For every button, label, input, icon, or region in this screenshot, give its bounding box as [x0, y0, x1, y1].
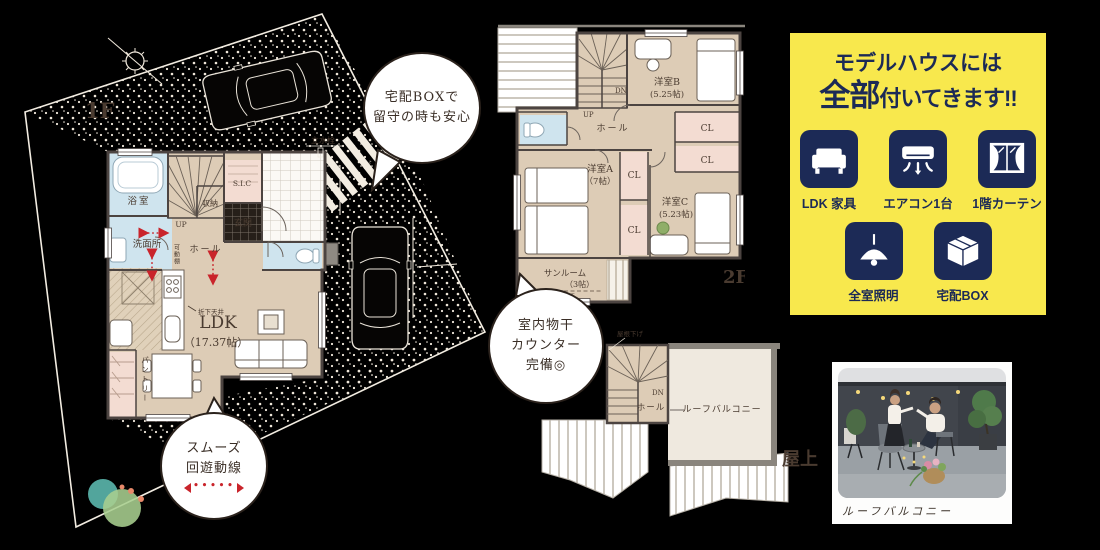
label-cl: CL [701, 124, 714, 134]
bubble-line: 完備◎ [526, 356, 566, 376]
label-sunroom: サンルーム [544, 269, 586, 279]
sunroom-louver [607, 260, 628, 300]
label-roof-balcony: ルーフバルコニー [682, 404, 761, 415]
aircon-icon [899, 140, 937, 178]
promo-item-curtain: 1階カーテン [971, 130, 1043, 212]
plant-icon [657, 222, 669, 234]
label-dn-roof: DN [652, 389, 664, 397]
label-entrance: 玄関 [234, 217, 252, 229]
photo-caption: ルーフバルコニー [842, 503, 953, 519]
label-cl: CL [628, 226, 641, 236]
curtain-icon [988, 140, 1026, 178]
label-ldk-size: （17.37帖） [184, 336, 249, 349]
bubble-line: 留守の時も安心 [373, 108, 471, 128]
floor-plan-2f: 洋室B (5.25帖) DN UP ホール CL CL CL CL 洋室A （7… [495, 15, 745, 310]
label-sic: S.I.C [233, 179, 252, 188]
label-cl: CL [701, 156, 714, 166]
roof-balcony-photo: ルーフバルコニー [832, 362, 1012, 524]
toilet [296, 249, 319, 263]
stove [164, 276, 181, 298]
floor1-label: 1F [85, 98, 115, 123]
label-bedroom-c-size: (5.23帖) [659, 209, 693, 220]
label-washroom: 洗面所 [133, 238, 162, 250]
label-bedroom-a: 洋室A [587, 163, 613, 175]
tree-icon [88, 479, 144, 527]
label-bath: 浴室 [127, 195, 150, 207]
promo-title: モデルハウスには 全部付いてきます!! [790, 51, 1046, 116]
bubble-line: 回遊動線 [186, 459, 242, 479]
bed-bedroom-b [697, 39, 735, 101]
svg-text:立水栓: 立水栓 [311, 135, 335, 145]
roof-surface-left [542, 420, 648, 498]
stairs-2f [577, 33, 627, 108]
label-pantry: パントリー [140, 356, 149, 404]
desk-bedroom-c [650, 235, 688, 255]
car-icon [349, 227, 411, 349]
roof-label: 屋上 [782, 449, 818, 470]
promo-title-line2: 付いてきます!! [879, 86, 1016, 111]
floor2-label: 2F [723, 267, 745, 288]
label-up-1f: UP [175, 220, 186, 229]
label-ldk: LDK [199, 313, 237, 333]
label-hall-roof: ホール [637, 403, 666, 413]
label-hall-1f: ホール [189, 244, 222, 255]
label-storage: 収納 [202, 198, 218, 208]
promo-title-line1: モデルハウスには [790, 51, 1046, 77]
label-bedroom-a-size: （7帖） [585, 176, 616, 187]
label-bedroom-b: 洋室B [654, 76, 680, 88]
label-movable-shelf: 可動棚 [173, 244, 180, 265]
bubble-line: スムーズ [186, 439, 241, 459]
promo-item-delivery-box: 宅配BOX [927, 222, 999, 304]
kitchen-sink [165, 316, 180, 342]
label-cl: CL [628, 171, 641, 181]
sofa-icon [810, 140, 848, 178]
photo-scene [838, 368, 1006, 498]
promo-panel: モデルハウスには 全部付いてきます!! LDK 家具 [790, 33, 1046, 315]
flyer-canvas: 1F [0, 0, 1100, 550]
promo-item-lighting: 全室照明 [838, 222, 910, 304]
label-dn-2f: DN [615, 87, 627, 95]
washbasin [110, 238, 126, 262]
bubble-indoor-drying: 室内物干 カウンター 完備◎ [488, 288, 604, 404]
lower-roof-stripes [498, 28, 577, 112]
bubble-smooth-flow: スムーズ 回遊動線 ••••• [160, 412, 268, 520]
label-bedroom-b-size: (5.25帖) [650, 89, 684, 100]
cupboard [110, 320, 132, 346]
dining-table [143, 354, 201, 398]
beds-bedroom-a [525, 168, 588, 254]
promo-title-emphasis: 全部 [819, 78, 879, 113]
toilet [524, 123, 544, 137]
ceiling-light-icon [855, 232, 893, 270]
bubble-line: 宅配BOXで [385, 88, 459, 108]
room-porch [263, 152, 325, 242]
label-hall-2f: ホール [596, 123, 629, 134]
tv-board [258, 310, 284, 334]
delivery-box-icon [944, 232, 982, 270]
bed-bedroom-c [695, 193, 730, 254]
stairs-1f [168, 156, 224, 218]
red-dotted-arrow-icon: ••••• [184, 482, 244, 493]
svg-text:折下天井: 折下天井 [198, 307, 225, 316]
label-sunroom-size: （3帖） [565, 279, 594, 289]
label-bedroom-c: 洋室C [662, 196, 688, 208]
label-up-2f: UP [583, 111, 594, 119]
bubble-delivery-box: 宅配BOXで 留守の時も安心 [363, 52, 481, 164]
bubble-line: 室内物干 [518, 316, 574, 336]
svg-text:屋根下げ: 屋根下げ [617, 329, 644, 338]
bubble-line: カウンター [511, 336, 581, 356]
promo-item-aircon: エアコン1台 [882, 130, 954, 212]
promo-item-ldk-furniture: LDK 家具 [793, 130, 865, 212]
